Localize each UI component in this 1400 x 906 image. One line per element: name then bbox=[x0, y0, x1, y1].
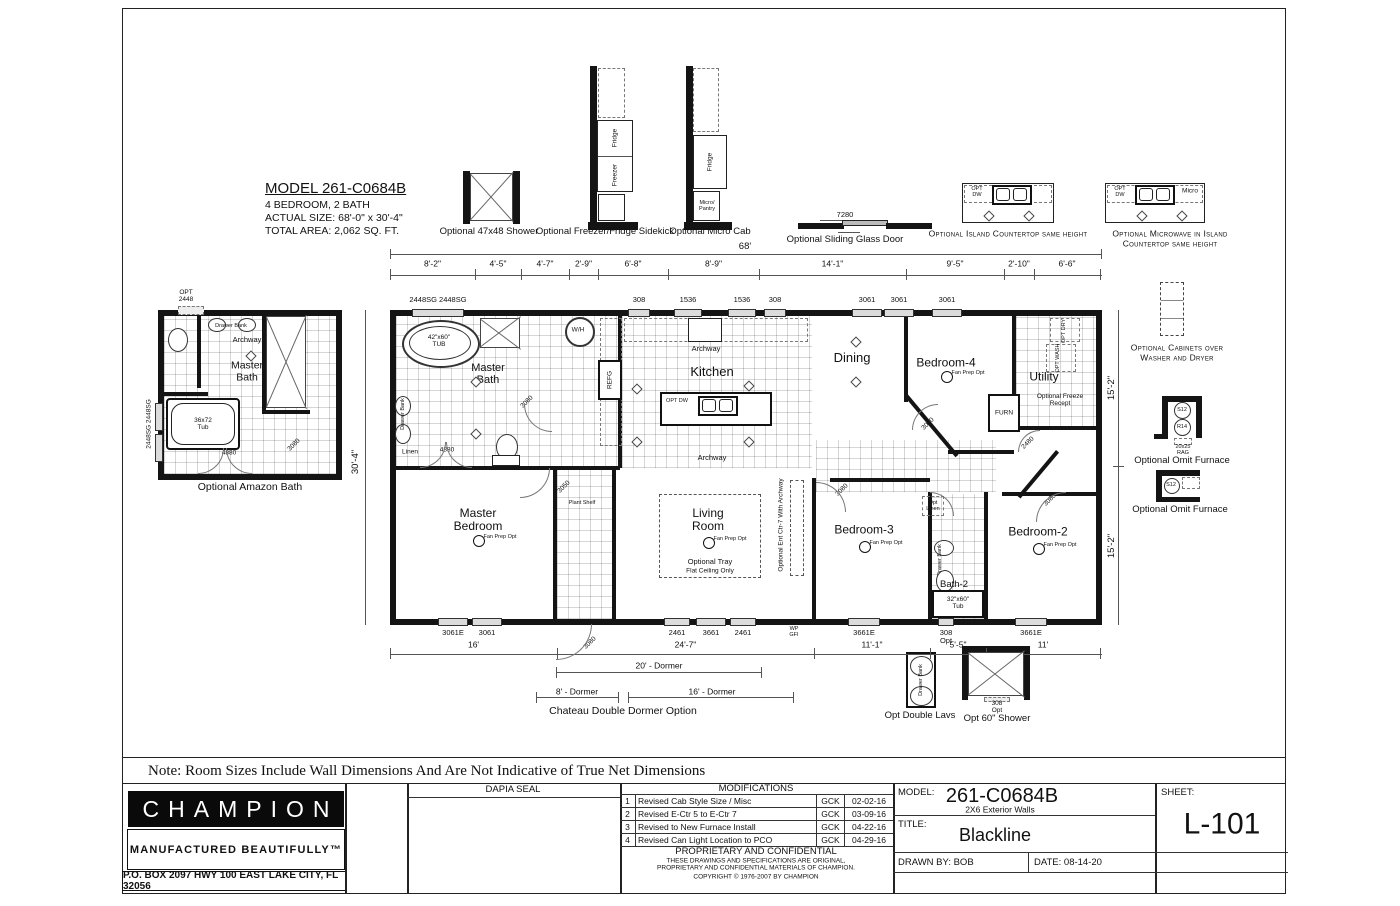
room-utility: Utility bbox=[1029, 370, 1058, 383]
micro-island-label1: Optional Microwave in Island bbox=[1112, 229, 1227, 238]
island-sink-bowl bbox=[719, 399, 733, 412]
plant-shelf-label: Plant Shelf bbox=[569, 500, 596, 506]
tb-divider bbox=[407, 784, 409, 894]
room-bedroom3: Bedroom-3 bbox=[834, 523, 893, 536]
right-dim-top-label: 15'-2" bbox=[1107, 376, 1117, 400]
mod-by: GCK bbox=[817, 808, 845, 821]
model-title: MODEL 261-C0684B bbox=[265, 180, 406, 197]
opt-linen-label: Opt Linen bbox=[923, 500, 943, 512]
dormer16-label: 16' - Dormer bbox=[686, 687, 739, 696]
dormer8-line bbox=[536, 697, 618, 698]
opt-tray-label1: Optional Tray bbox=[688, 558, 733, 566]
proprietary-line2: PROPRIETARY AND CONFIDENTIAL MATERIALS O… bbox=[657, 864, 855, 871]
mod-num: 1 bbox=[620, 795, 636, 808]
model-area: TOTAL AREA: 2,062 SQ. FT. bbox=[265, 225, 399, 237]
model-size: ACTUAL SIZE: 68'-0" x 30'-4" bbox=[265, 212, 403, 224]
drawer-bank-label: Drawer Bank bbox=[400, 398, 406, 430]
tb-line bbox=[893, 815, 1155, 816]
microcab-wall bbox=[686, 66, 693, 224]
opt-shower-label: Optional 47x48 Shower bbox=[440, 227, 539, 237]
left-dim-line bbox=[365, 310, 366, 625]
amazon-wall bbox=[336, 310, 342, 480]
wall-interior bbox=[390, 466, 620, 470]
ent-ctr-outline bbox=[790, 480, 804, 576]
date: DATE: 08-14-20 bbox=[1034, 857, 1102, 868]
wall-exterior bbox=[390, 310, 1102, 316]
closet-floor bbox=[557, 470, 612, 619]
dapia-seal-label: DAPIA SEAL bbox=[486, 785, 541, 795]
shower60-wall bbox=[962, 646, 1030, 652]
dormer20-line bbox=[556, 672, 761, 673]
sliding-door-panel bbox=[798, 223, 844, 229]
wall-exterior bbox=[1096, 310, 1102, 625]
s12-label: S12 bbox=[1166, 482, 1176, 488]
wall-interior bbox=[830, 478, 930, 482]
mod-num: 2 bbox=[620, 808, 636, 821]
omit-furnace1-wall bbox=[1196, 396, 1202, 438]
shower60-label: Opt 60" Shower bbox=[964, 714, 1031, 724]
champion-tagline: MANUFACTURED BEAUTIFULLY™ bbox=[127, 829, 345, 870]
dim-tick bbox=[536, 692, 537, 703]
island-sink-bowl bbox=[1013, 188, 1027, 201]
wall-interior bbox=[812, 478, 816, 621]
microcab-label: Optional Micro Cab bbox=[669, 227, 750, 237]
opt-cabinets-shelf bbox=[1161, 318, 1183, 319]
modifications-header: MODIFICATIONS bbox=[719, 784, 794, 794]
mod-date: 02-02-16 bbox=[845, 795, 893, 808]
wall-interior bbox=[984, 492, 988, 621]
ent-ctr-label: Optional Ent Ctr-7 With Archway bbox=[777, 478, 784, 571]
island-label: Optional Island Countertop same height bbox=[929, 229, 1088, 238]
amazon-toilet bbox=[168, 328, 188, 352]
mod-date: 03-09-16 bbox=[845, 808, 893, 821]
room-dining: Dining bbox=[834, 351, 871, 365]
left-dim-label: 30'-4" bbox=[351, 450, 361, 474]
wall-interior bbox=[612, 470, 616, 621]
freeze-recept-label: Optional Freeze Recept bbox=[1031, 393, 1089, 407]
amazon-window bbox=[155, 403, 163, 431]
sidekick-base-cab bbox=[598, 194, 625, 221]
double-lavs-label: Opt Double Lavs bbox=[885, 711, 956, 721]
mod-num: 4 bbox=[620, 834, 636, 847]
microcab-micro-label: Micro/ Pantry bbox=[695, 200, 719, 212]
dim-tick bbox=[618, 692, 619, 703]
room-bath2: Bath-2 bbox=[940, 580, 968, 590]
island-optdw: OPT DW bbox=[666, 398, 688, 404]
amazon-shower-label: 4896 Shower w/ Seat bbox=[268, 386, 304, 398]
dormer20-label: 20' - Dormer bbox=[633, 661, 686, 670]
tb-divider bbox=[893, 784, 895, 894]
opt-cabinets-box bbox=[1160, 282, 1184, 336]
mod-desc: Revised E-Ctr 5 to E-Ctr 7 bbox=[636, 808, 817, 821]
amazon-archway: Archway bbox=[233, 336, 262, 344]
linen-label: Linen bbox=[402, 448, 418, 455]
right-dim-bottom-label: 15'-2" bbox=[1107, 534, 1117, 558]
wall-interior bbox=[1014, 426, 1100, 430]
island-sink-bowl bbox=[702, 399, 716, 412]
micro-island-micro-label: Micro bbox=[1182, 187, 1198, 194]
master-shower-label: SHWR bbox=[489, 337, 509, 344]
mod-desc: Revised Cab Style Size / Misc bbox=[636, 795, 817, 808]
amazon-tub-label: 36x72 Tub bbox=[188, 417, 218, 431]
amazon-wall bbox=[158, 474, 342, 480]
shower60-wall bbox=[1024, 646, 1030, 700]
opt-shower-wall bbox=[513, 171, 520, 224]
wall-exterior bbox=[390, 619, 1102, 625]
tb-divider bbox=[1028, 852, 1029, 872]
room-bedroom4: Bedroom-4 bbox=[916, 356, 975, 369]
micro-island-sink-bowl bbox=[1156, 188, 1170, 201]
amazon-wall-int bbox=[262, 410, 310, 414]
amazon-opt2448-label: OPT 2448 bbox=[174, 289, 198, 303]
s12-label: S12 bbox=[1177, 407, 1187, 413]
sidekick-fridge-label: Fridge bbox=[611, 129, 618, 147]
amazon-master-bath: Master Bath bbox=[225, 360, 269, 383]
wall-interior bbox=[904, 312, 908, 402]
mod-num: 3 bbox=[620, 821, 636, 834]
title-value: Blackline bbox=[959, 826, 1031, 846]
range bbox=[688, 318, 722, 342]
opt-cabinets-label1: Optional Cabinets over bbox=[1131, 343, 1223, 352]
tb-line bbox=[893, 852, 1288, 853]
omit-furnace1-label: Optional Omit Furnace bbox=[1134, 456, 1230, 466]
archway-label: Archway bbox=[692, 345, 721, 353]
micro-island-label2: Countertop same height bbox=[1123, 239, 1218, 248]
amazon-wall-int bbox=[158, 392, 208, 396]
amazon-caption: Optional Amazon Bath bbox=[198, 482, 302, 494]
proprietary-title: PROPRIETARY AND CONFIDENTIAL bbox=[675, 847, 837, 857]
mod-desc: Revised to New Furnace Install bbox=[636, 821, 817, 834]
island-sink-bowl bbox=[996, 188, 1010, 201]
tb-divider bbox=[345, 784, 347, 894]
sliding-door-dim: 7280 bbox=[837, 211, 854, 219]
archway-label: Archway bbox=[698, 454, 727, 462]
furnace-label: FURN bbox=[995, 409, 1013, 416]
microcab-fridge-label: Fridge bbox=[706, 153, 713, 171]
amazon-wall-int bbox=[197, 312, 201, 388]
opt-shower-inner-label: 47x48 Shower bbox=[473, 202, 508, 208]
drawn-by: DRAWN BY: BOB bbox=[898, 857, 974, 868]
amazon-4880-label: 4880 bbox=[222, 449, 236, 456]
shower60-wall bbox=[962, 646, 968, 700]
proprietary-line3: COPYRIGHT © 1976-2007 BY CHAMPION bbox=[693, 873, 818, 880]
overall-dim-label: 68' bbox=[739, 242, 751, 252]
master-tub-label: 42"x60" TUB bbox=[421, 334, 457, 348]
champion-address: P.O. BOX 2097 HWY 100 EAST LAKE CITY, FL… bbox=[122, 871, 346, 891]
dim-tick bbox=[628, 692, 629, 703]
fridge-label: REFG bbox=[606, 371, 613, 389]
amazon-opt-window bbox=[178, 306, 204, 315]
opt-cabinets-shelf bbox=[1161, 300, 1183, 301]
room-kitchen: Kitchen bbox=[690, 365, 733, 379]
sidekick-label: Optional Freezer/Fridge Sidekick bbox=[536, 227, 674, 237]
sidekick-cabinet bbox=[598, 68, 625, 118]
opt-dry-label: OPT DRY bbox=[1061, 319, 1067, 343]
sidekick-divider bbox=[598, 156, 632, 157]
door-4880-label: 4880 bbox=[440, 446, 454, 453]
micro-island-sink-bowl bbox=[1139, 188, 1153, 201]
mod-by: GCK bbox=[817, 821, 845, 834]
right-dim-line bbox=[1118, 310, 1119, 625]
omit-furnace1-wall bbox=[1154, 434, 1168, 439]
omit-furnace2-wall bbox=[1162, 497, 1200, 502]
sliding-door-label: Optional Sliding Glass Door bbox=[787, 235, 904, 245]
room-master-bedroom: Master Bedroom bbox=[445, 507, 511, 533]
room-bedroom2: Bedroom-2 bbox=[1008, 525, 1067, 538]
sliding-door-slider bbox=[842, 220, 888, 226]
dim-tick bbox=[1113, 466, 1124, 467]
wp-gfi-label: WP GFI bbox=[786, 626, 802, 638]
opt-cabinets-label2: Washer and Dryer bbox=[1140, 353, 1214, 362]
sliding-door-panel bbox=[886, 223, 932, 229]
model-sub: 2X6 Exterior Walls bbox=[965, 805, 1035, 814]
mod-date: 04-29-16 bbox=[845, 834, 893, 847]
sidekick-wall bbox=[590, 66, 597, 224]
opt-wash-label: OPT WASH bbox=[1055, 343, 1061, 372]
wall-interior bbox=[1012, 312, 1016, 398]
dim-tick bbox=[556, 667, 557, 678]
modifications-table: 1Revised Cab Style Size / MiscGCK02-02-1… bbox=[620, 794, 893, 847]
sheet-note: Note: Room Sizes Include Wall Dimensions… bbox=[148, 763, 705, 780]
amazon-window-label: 2448SG 2448SG bbox=[145, 399, 152, 449]
model-beds: 4 BEDROOM, 2 BATH bbox=[265, 199, 370, 211]
toilet-tank bbox=[492, 455, 520, 466]
amazon-drawer-bank: Drawer Bank bbox=[215, 323, 247, 329]
lavs-drawer-bank: Drawer Bank bbox=[918, 664, 924, 696]
title-label: TITLE: bbox=[898, 819, 927, 830]
tb-line bbox=[893, 872, 1288, 873]
dim-tick bbox=[761, 667, 762, 678]
omit-furnace2-wall bbox=[1156, 470, 1200, 476]
dormer16-line bbox=[628, 697, 793, 698]
opt-tray-label2: Flat Ceiling Only bbox=[686, 567, 734, 574]
omit-furnace2-label: Optional Omit Furnace bbox=[1132, 505, 1228, 515]
bath2-tub-label: 32"x60" Tub bbox=[941, 596, 975, 610]
champion-logo: CHAMPION bbox=[128, 791, 344, 827]
omit-furnace1-wall bbox=[1162, 396, 1168, 438]
micro-island-optdw-label: OPT DW bbox=[1110, 186, 1130, 198]
dormer8-label: 8' - Dormer bbox=[553, 687, 601, 696]
omit-furnace2-vent bbox=[1182, 477, 1200, 489]
shower60-inner-label: 3660 Shower bbox=[979, 657, 1013, 671]
model-label: MODEL: bbox=[898, 787, 934, 798]
tb-divider bbox=[1155, 784, 1157, 894]
chateau-label: Chateau Double Dormer Option bbox=[549, 706, 697, 718]
mod-date: 04-22-16 bbox=[845, 821, 893, 834]
room-master-bath: Master Bath bbox=[464, 362, 512, 386]
r14-label: R14 bbox=[1177, 424, 1187, 430]
dapia-underline bbox=[407, 797, 620, 798]
water-heater-label: W/H bbox=[572, 326, 585, 333]
sheet-label: SHEET: bbox=[1161, 787, 1194, 798]
dim-tick bbox=[793, 692, 794, 703]
microcab-cabinet bbox=[693, 68, 719, 132]
opt-shower-wall bbox=[463, 171, 470, 224]
sidekick-freezer-label: Freezer bbox=[611, 164, 618, 186]
amazon-window bbox=[155, 434, 163, 462]
mod-by: GCK bbox=[817, 795, 845, 808]
island-optdw-label: OPT DW bbox=[967, 186, 987, 198]
sheet-number: L-101 bbox=[1184, 808, 1261, 841]
blueprint-sheet: MODEL 261-C0684B 4 BEDROOM, 2 BATH ACTUA… bbox=[0, 0, 1400, 906]
wall-interior bbox=[553, 470, 557, 621]
